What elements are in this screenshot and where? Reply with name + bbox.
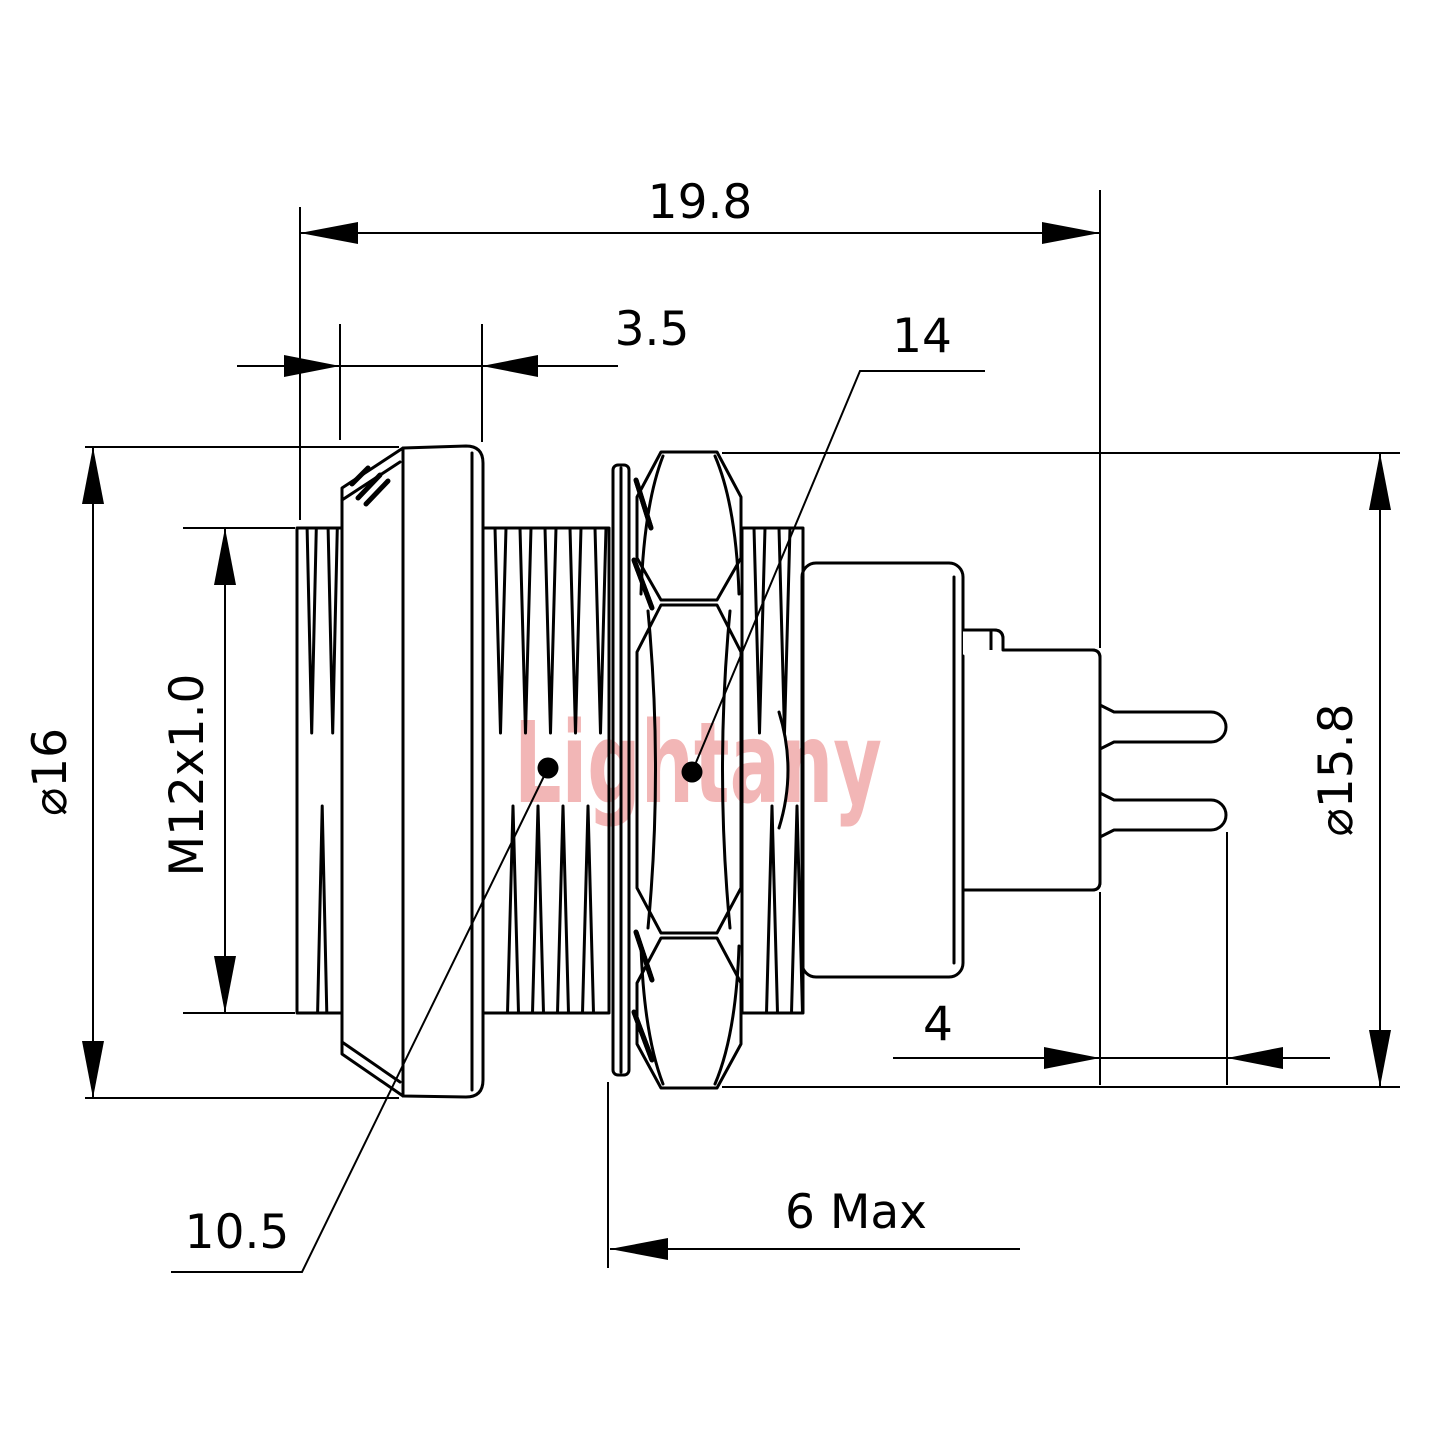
dim-flange-thickness-label: 3.5 (615, 302, 690, 357)
arrowhead (1369, 453, 1391, 510)
dim-thread-length-label: 6 Max (785, 1185, 927, 1240)
dim-pin-length-label: 4 (923, 997, 953, 1052)
arrowhead (300, 222, 358, 244)
arrowhead (82, 447, 104, 504)
reference-dot-hex-nut (682, 762, 703, 783)
dim-overall-length-label: 19.8 (648, 175, 753, 230)
reference-dot-barrel (538, 758, 559, 779)
arrowhead (610, 1238, 668, 1260)
dim-flange-diameter-label: ⌀16 (23, 728, 78, 816)
dim-rear-diameter-label: ⌀15.8 (1309, 704, 1364, 837)
dim-hex-width-label: 14 (892, 309, 952, 364)
arrowhead (482, 355, 538, 377)
connector-technical-drawing: Lightany 19.8 3.5 14 10.5 ⌀16 M12x1 (0, 0, 1440, 1440)
arrowhead (214, 528, 236, 585)
arrowhead (214, 956, 236, 1013)
arrowhead (1044, 1047, 1100, 1069)
arrowhead (82, 1041, 104, 1098)
dim-inner-diameter-label: 10.5 (185, 1205, 290, 1260)
arrowhead (1227, 1047, 1283, 1069)
drawing-page: Lightany 19.8 3.5 14 10.5 ⌀16 M12x1 (0, 0, 1440, 1440)
arrowhead (1042, 222, 1100, 244)
thread-spec-label: M12x1.0 (160, 674, 215, 877)
arrowhead (284, 355, 340, 377)
arrowhead (1369, 1030, 1391, 1087)
